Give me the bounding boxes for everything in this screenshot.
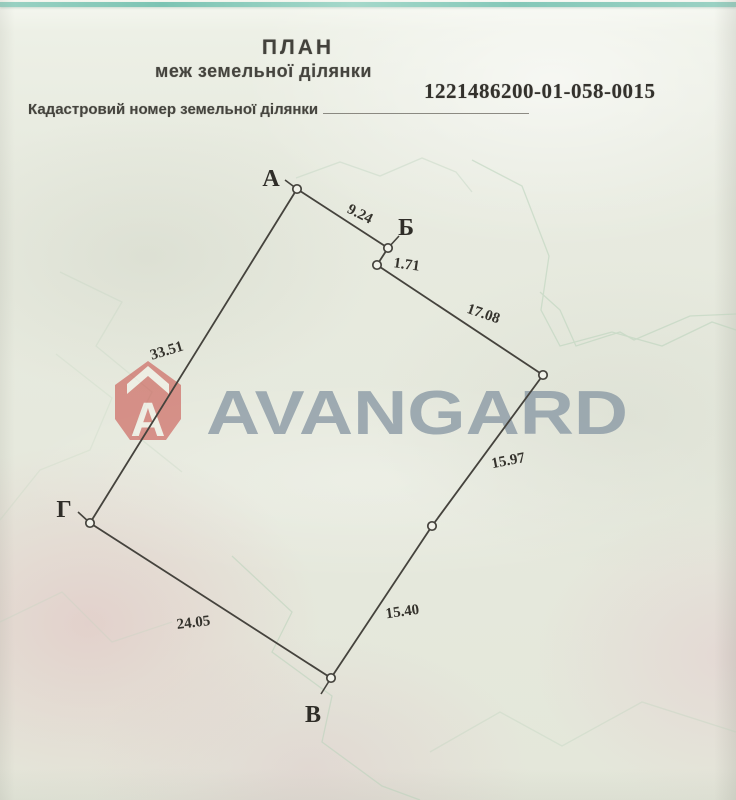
vertex-label: В — [305, 702, 321, 728]
boundary-point-marker — [384, 244, 392, 252]
avangard-logo-badge: A — [115, 361, 181, 447]
avangard-watermark: AAVANGARD — [115, 361, 628, 448]
boundary-point-marker — [293, 185, 301, 193]
boundary-point-marker — [327, 674, 335, 682]
vertex-label: А — [262, 166, 280, 192]
map-contour-lines — [0, 158, 736, 800]
segment-length-label: 24.05 — [176, 613, 211, 633]
avangard-wordmark: AVANGARD — [206, 379, 628, 448]
boundary-point-marker — [539, 371, 547, 379]
scanned-land-plan-document: ПЛАН меж земельної ділянки 1221486200-01… — [0, 0, 736, 800]
boundary-point-marker — [86, 519, 94, 527]
segment-length-label: 1.71 — [392, 255, 420, 274]
boundary-point-marker — [428, 522, 436, 530]
vertex-label: Г — [56, 497, 71, 523]
segment-length-label: 33.51 — [148, 339, 185, 364]
avangard-logo-letter: A — [131, 394, 166, 447]
vertex-label: Б — [398, 215, 414, 241]
boundary-point-marker — [373, 261, 381, 269]
segment-length-label: 15.97 — [490, 450, 527, 472]
segment-length-label: 17.08 — [465, 301, 502, 327]
segment-length-label: 15.40 — [385, 602, 421, 623]
parcel-plan-drawing: AAVANGARDАБВГ9.241.7117.0815.9715.4024.0… — [0, 0, 736, 800]
